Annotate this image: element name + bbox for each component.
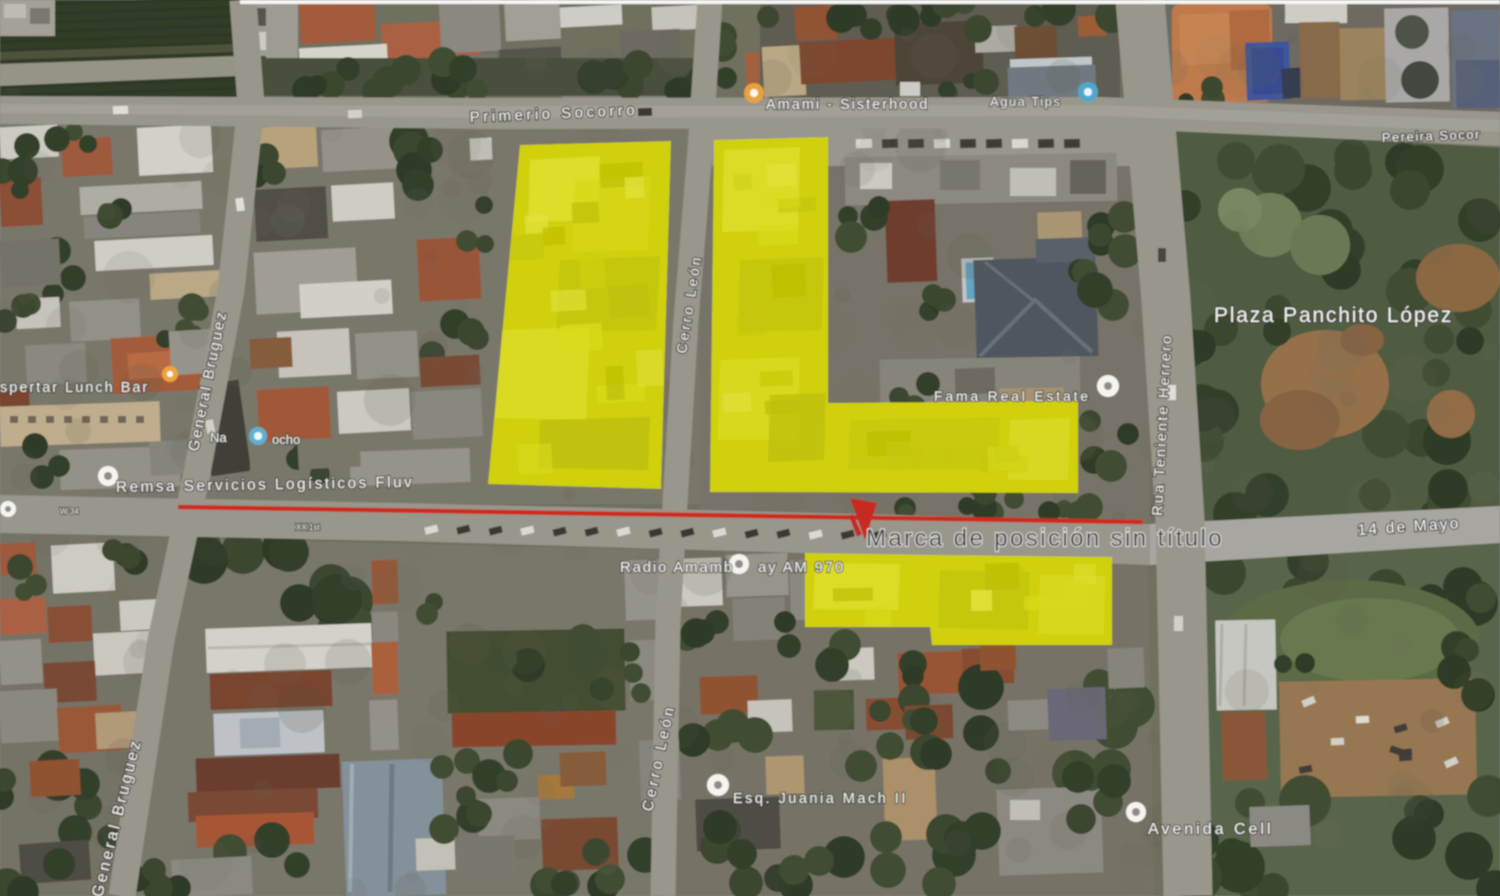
svg-text:Amami - Sisterhood: Amami - Sisterhood xyxy=(766,97,929,113)
svg-text:spertar Lunch Bar: spertar Lunch Bar xyxy=(0,380,149,396)
svg-text:Plaza Panchito López: Plaza Panchito López xyxy=(1214,304,1453,327)
svg-text:ocho: ocho xyxy=(272,432,300,447)
svg-text:ay AM 970: ay AM 970 xyxy=(758,559,845,576)
svg-text:Na: Na xyxy=(210,430,227,445)
svg-text:Esq. Juania Mach II: Esq. Juania Mach II xyxy=(733,791,908,807)
svg-text:W 34: W 34 xyxy=(60,507,79,516)
svg-text:Marca de posición sin título: Marca de posición sin título xyxy=(866,525,1224,552)
svg-text:Fama Real Estate: Fama Real Estate xyxy=(934,388,1091,404)
svg-text:Radio Amamb: Radio Amamb xyxy=(620,559,734,576)
svg-text:Agua Tips: Agua Tips xyxy=(990,94,1061,109)
svg-text:Avenida Cell: Avenida Cell xyxy=(1148,821,1274,838)
svg-text:XX 1st: XX 1st xyxy=(296,523,320,532)
